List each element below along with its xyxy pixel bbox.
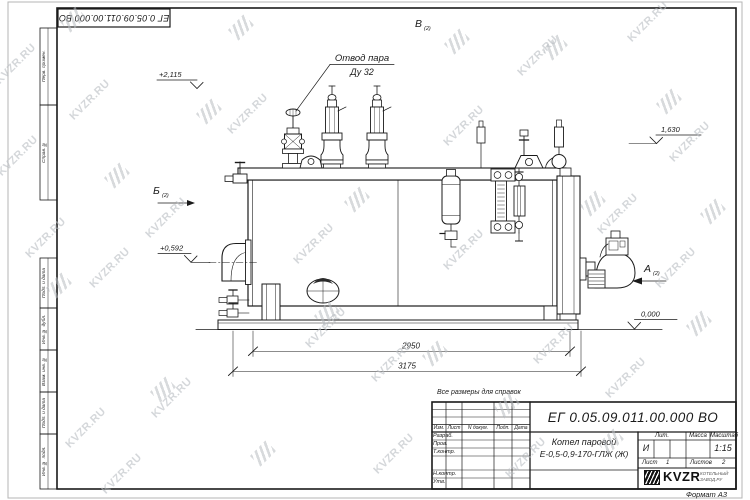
elevation-flue-axis: +0,592 [160,244,184,253]
boiler-shell [248,180,557,306]
company-tagline-line2: ЗАВОД.РУ [700,477,722,482]
col-data: Дата [512,425,530,431]
titleblock-designation: ЕГ 0.05.09.011.00.000 ВО [530,404,736,431]
margin-label-podp-data-1: Подп. и дата [41,258,50,308]
elevation-valve-top: +2,115 [159,70,182,79]
product-name-line1: Котел паровой [530,437,638,447]
col-list: Лист [446,425,462,431]
burner [580,231,635,288]
flue-elbow [209,240,258,285]
format-note: Формат А3 [686,490,727,499]
callout-text-line1: Отвод пара [335,53,389,64]
col-izm: Изм. [432,425,446,431]
boiler-view: Отвод пара Ду 32 В (2) Б (2) А (2) +2,11… [153,18,701,377]
margin-label-podp-data-2: Подп. и дата [41,392,50,434]
scale-label: Масштаб [710,433,736,439]
view-ref-a: (2) [653,271,660,277]
lit-value: И [638,443,654,453]
drawing-sheet: Отвод пара Ду 32 В (2) Б (2) А (2) +2,11… [0,0,750,500]
mass-label: Масса [686,433,710,439]
view-label-a: А [643,263,651,275]
product-name-line2: Е-0,5-0,9-170-ГЛЖ (Ж) [530,449,638,459]
steam-outlet-valve [282,109,305,168]
margin-label-sprav-no: Справ. № [41,105,50,200]
level-sensor [477,121,485,168]
row-tkontr: Т.контр. [433,449,455,455]
col-podp: Подп. [494,425,512,431]
pressure-gauge-assembly [515,120,566,169]
drain-taps [219,290,249,317]
view-arrow-a [632,278,666,285]
corner-stamp-text: ЕГ 0.05.09.011.00.000 ВО [58,9,170,27]
scale-value: 1:15 [710,443,736,453]
skid-base [218,320,578,330]
row-nkontr: Н.контр. [433,471,456,477]
elevation-base: 0,000 [641,310,661,319]
row-razrab: Разраб. [433,433,453,439]
front-plate [557,168,580,320]
sheet-label: Лист [642,460,657,466]
margin-label-inv-podl: Инв. № подл. [41,434,50,489]
row-utv: Утв. [433,479,446,485]
company-logo-icon [644,470,660,485]
safety-valve-1 [321,86,346,168]
elevation-gauge-level: 1,630 [661,125,681,134]
company-tagline-line1: КОТЕЛЬНЫЙ [700,471,728,476]
view-ref-v: (2) [424,26,431,32]
margin-label-vzam-inv: Взам. инв. № [41,350,50,392]
reference-note: Все размеры для справок [437,389,521,396]
view-label-v: В [415,18,422,30]
safety-valve-2 [366,86,391,168]
col-ndoc: N докум. [462,425,494,431]
margin-label-perv-primen: Перв. примен. [41,28,50,105]
dim-skid-length: 2950 [401,342,420,351]
sheets-total: 2 [722,460,725,466]
company-name: KVZR [663,469,700,484]
row-prov: Пров. [433,441,448,447]
view-label-b: Б [153,185,160,197]
company-tagline: КОТЕЛЬНЫЙЗАВОД.РУ [700,471,728,483]
callout-text-line2: Ду 32 [349,67,373,77]
sheets-label: Листов [690,460,712,466]
lit-label: Лит. [638,433,686,439]
view-arrow-b [158,200,195,206]
sheet-number: 1 [666,460,669,466]
margin-label-inv-dubl: Инв. № дубл. [41,308,50,350]
dim-overall-length: 3175 [398,362,416,371]
view-ref-b: (2) [162,193,169,199]
